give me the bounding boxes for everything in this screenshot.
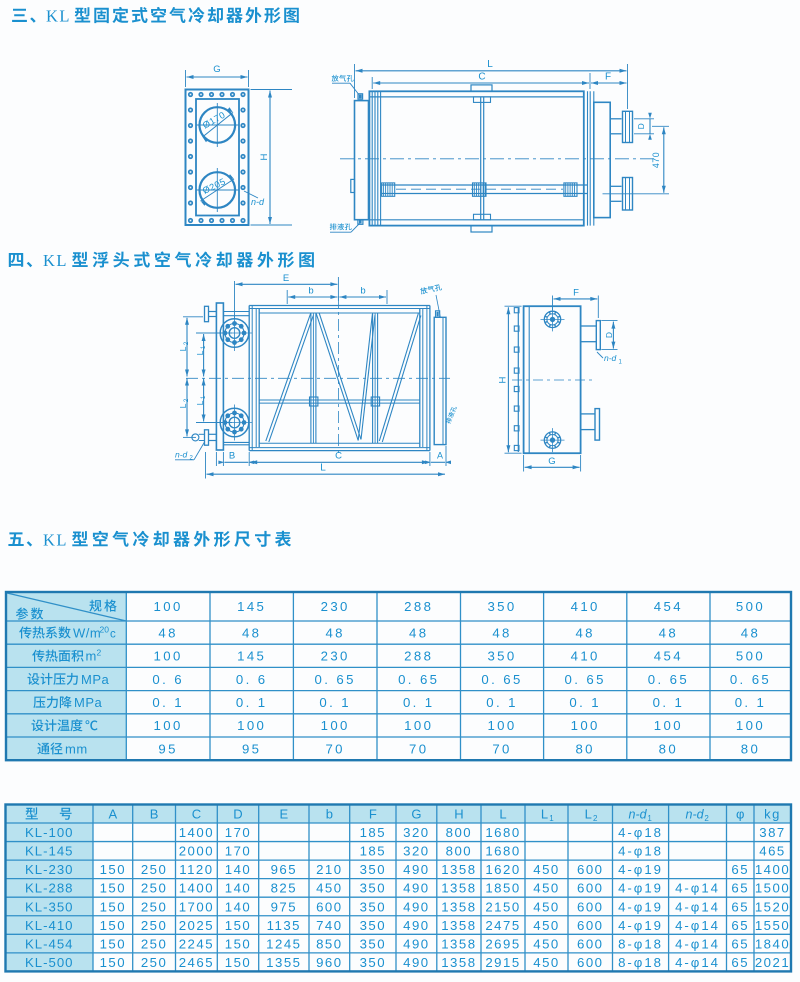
svg-text:1520: 1520 [755, 899, 790, 914]
svg-text:1500: 1500 [755, 881, 790, 896]
svg-text:48: 48 [575, 625, 594, 640]
svg-text:KL-410: KL-410 [25, 918, 74, 933]
svg-text:1358: 1358 [441, 955, 476, 970]
svg-text:0. 1: 0. 1 [152, 695, 184, 710]
svg-text:A: A [109, 807, 118, 822]
svg-text:H: H [259, 153, 270, 160]
svg-text:100: 100 [154, 649, 183, 664]
svg-text:8-φ18: 8-φ18 [618, 936, 663, 951]
svg-text:450: 450 [533, 918, 560, 933]
svg-text:350: 350 [360, 918, 387, 933]
svg-text:0. 1: 0. 1 [403, 695, 435, 710]
svg-text:250: 250 [141, 862, 168, 877]
svg-text:230: 230 [321, 599, 350, 614]
svg-text:48: 48 [741, 625, 760, 640]
svg-text:150: 150 [225, 936, 252, 951]
svg-text:n-d: n-d [629, 808, 648, 822]
svg-text:C: C [478, 71, 485, 82]
svg-text:1355: 1355 [266, 955, 301, 970]
svg-text:C: C [192, 807, 201, 822]
svg-text:1: 1 [549, 814, 554, 823]
svg-text:1840: 1840 [755, 936, 790, 951]
svg-text:48: 48 [325, 625, 344, 640]
svg-text:410: 410 [571, 599, 600, 614]
svg-text:1700: 1700 [179, 899, 214, 914]
svg-text:E: E [280, 807, 289, 822]
svg-text:1: 1 [647, 814, 652, 823]
svg-text:490: 490 [403, 862, 430, 877]
svg-text:KL: KL [43, 530, 68, 549]
svg-text:mm: mm [65, 741, 88, 756]
svg-text:b: b [360, 286, 365, 297]
svg-text:100: 100 [154, 718, 183, 733]
svg-text:F: F [605, 71, 611, 82]
svg-text:454: 454 [654, 599, 683, 614]
svg-text:150: 150 [100, 881, 127, 896]
svg-text:65: 65 [731, 899, 749, 914]
svg-text:W/m: W/m [73, 625, 101, 640]
svg-text:140: 140 [225, 881, 252, 896]
svg-text:G: G [548, 456, 555, 467]
svg-text:70: 70 [492, 741, 511, 756]
svg-text:KL-145: KL-145 [25, 844, 74, 859]
svg-text:350: 350 [360, 899, 387, 914]
svg-text:2: 2 [704, 814, 709, 823]
svg-text:80: 80 [659, 741, 678, 756]
svg-text:465: 465 [759, 844, 786, 859]
svg-text:F: F [369, 807, 377, 822]
svg-text:KL: KL [46, 7, 71, 26]
svg-text:150: 150 [100, 918, 127, 933]
svg-text:1680: 1680 [485, 844, 520, 859]
svg-text:185: 185 [360, 844, 387, 859]
svg-text:600: 600 [577, 881, 604, 896]
svg-text:1680: 1680 [485, 825, 520, 840]
svg-text:600: 600 [577, 899, 604, 914]
svg-text:170: 170 [225, 844, 252, 859]
svg-text:1850: 1850 [485, 881, 520, 896]
svg-text:L: L [195, 350, 205, 355]
svg-text:145: 145 [237, 599, 266, 614]
svg-text:965: 965 [271, 862, 298, 877]
svg-text:D: D [636, 123, 646, 129]
svg-text:0. 6: 0. 6 [236, 672, 268, 687]
svg-text:2000: 2000 [179, 844, 214, 859]
svg-text:4-φ14: 4-φ14 [675, 918, 720, 933]
svg-text:145: 145 [237, 649, 266, 664]
svg-text:L: L [541, 807, 548, 822]
svg-text:0. 65: 0. 65 [481, 672, 522, 687]
svg-text:350: 350 [360, 862, 387, 877]
svg-text:800: 800 [446, 844, 473, 859]
svg-text:490: 490 [403, 918, 430, 933]
svg-text:490: 490 [403, 936, 430, 951]
svg-text:H: H [498, 376, 509, 383]
svg-text:48: 48 [659, 625, 678, 640]
svg-text:100: 100 [404, 718, 433, 733]
svg-text:KL-454: KL-454 [25, 936, 74, 951]
svg-text:150: 150 [225, 918, 252, 933]
svg-text:288: 288 [404, 649, 433, 664]
svg-text:470: 470 [651, 152, 661, 168]
svg-text:95: 95 [242, 741, 261, 756]
svg-text:210: 210 [316, 862, 343, 877]
svg-text:H: H [454, 807, 463, 822]
svg-text:2915: 2915 [485, 955, 520, 970]
svg-text:350: 350 [487, 599, 516, 614]
svg-text:490: 490 [403, 899, 430, 914]
svg-text:490: 490 [403, 955, 430, 970]
svg-text:1400: 1400 [755, 862, 790, 877]
svg-text:0. 65: 0. 65 [730, 672, 771, 687]
svg-text:48: 48 [242, 625, 261, 640]
svg-text:410: 410 [571, 649, 600, 664]
svg-text:KL-350: KL-350 [25, 899, 74, 914]
svg-text:0. 1: 0. 1 [569, 695, 601, 710]
svg-text:65: 65 [731, 955, 749, 970]
svg-text:1358: 1358 [441, 899, 476, 914]
svg-text:825: 825 [271, 881, 298, 896]
svg-text:0. 65: 0. 65 [648, 672, 689, 687]
svg-text:600: 600 [577, 936, 604, 951]
svg-text:100: 100 [487, 718, 516, 733]
svg-text:4-φ19: 4-φ19 [618, 862, 663, 877]
svg-text:500: 500 [736, 599, 765, 614]
svg-text:E: E [283, 273, 289, 284]
svg-text:387: 387 [759, 825, 786, 840]
svg-text:2: 2 [593, 814, 598, 823]
svg-text:65: 65 [731, 936, 749, 951]
svg-text:4-φ14: 4-φ14 [675, 899, 720, 914]
svg-text:600: 600 [577, 862, 604, 877]
svg-text:8-φ18: 8-φ18 [618, 955, 663, 970]
svg-text:4-φ18: 4-φ18 [618, 844, 663, 859]
svg-text:KL-100: KL-100 [25, 825, 74, 840]
svg-text:KL: KL [43, 251, 68, 270]
svg-text:100: 100 [154, 599, 183, 614]
svg-text:n-d: n-d [686, 808, 705, 822]
svg-text:b: b [308, 286, 313, 297]
svg-text:350: 350 [360, 881, 387, 896]
svg-text:740: 740 [316, 918, 343, 933]
svg-text:450: 450 [533, 899, 560, 914]
svg-text:140: 140 [225, 899, 252, 914]
svg-text:350: 350 [360, 936, 387, 951]
svg-text:G: G [213, 64, 220, 75]
svg-text:600: 600 [577, 918, 604, 933]
svg-text:n-d: n-d [175, 450, 188, 460]
svg-text:185: 185 [360, 825, 387, 840]
svg-text:100: 100 [321, 718, 350, 733]
svg-text:B: B [150, 807, 159, 822]
svg-text:1358: 1358 [441, 881, 476, 896]
svg-text:L: L [178, 403, 188, 408]
svg-text:20: 20 [100, 624, 110, 634]
svg-text:F: F [573, 287, 579, 298]
svg-text:1358: 1358 [441, 918, 476, 933]
svg-text:450: 450 [533, 936, 560, 951]
svg-text:320: 320 [403, 844, 430, 859]
svg-text:150: 150 [100, 936, 127, 951]
svg-text:4-φ14: 4-φ14 [675, 936, 720, 951]
svg-text:4-φ19: 4-φ19 [618, 881, 663, 896]
svg-text:φ: φ [736, 807, 744, 822]
svg-text:100: 100 [654, 718, 683, 733]
svg-text:MPa: MPa [74, 695, 103, 710]
svg-text:kg: kg [764, 807, 781, 822]
svg-text:975: 975 [271, 899, 298, 914]
svg-text:800: 800 [446, 825, 473, 840]
svg-text:1400: 1400 [179, 825, 214, 840]
svg-text:250: 250 [141, 899, 168, 914]
svg-text:b: b [326, 807, 333, 822]
svg-text:80: 80 [741, 741, 760, 756]
svg-text:1135: 1135 [267, 918, 301, 933]
svg-text:1358: 1358 [441, 862, 476, 877]
svg-text:65: 65 [731, 881, 749, 896]
svg-text:L: L [487, 59, 493, 70]
svg-text:0. 6: 0. 6 [152, 672, 184, 687]
svg-text:0. 65: 0. 65 [565, 672, 606, 687]
svg-text:850: 850 [316, 936, 343, 951]
svg-text:65: 65 [731, 862, 749, 877]
svg-text:B: B [229, 451, 235, 462]
svg-text:100: 100 [571, 718, 600, 733]
svg-text:D: D [604, 332, 614, 338]
svg-text:1245: 1245 [266, 936, 301, 951]
svg-text:80: 80 [575, 741, 594, 756]
svg-text:230: 230 [321, 649, 350, 664]
svg-text:KL-230: KL-230 [25, 862, 74, 877]
svg-text:D: D [233, 807, 242, 822]
svg-text:1358: 1358 [441, 936, 476, 951]
svg-text:MPa: MPa [81, 672, 110, 687]
svg-text:150: 150 [225, 955, 252, 970]
svg-text:2021: 2021 [755, 955, 790, 970]
svg-text:C: C [335, 451, 342, 462]
svg-text:320: 320 [403, 825, 430, 840]
svg-text:2025: 2025 [179, 918, 214, 933]
svg-text:L: L [585, 807, 592, 822]
svg-text:L: L [195, 400, 205, 405]
svg-text:100: 100 [237, 718, 266, 733]
svg-text:70: 70 [325, 741, 344, 756]
svg-text:4-φ19: 4-φ19 [618, 918, 663, 933]
svg-text:450: 450 [533, 881, 560, 896]
svg-text:95: 95 [158, 741, 177, 756]
svg-text:65: 65 [731, 918, 749, 933]
svg-text:0. 65: 0. 65 [398, 672, 439, 687]
svg-text:48: 48 [492, 625, 511, 640]
svg-text:2695: 2695 [485, 936, 520, 951]
svg-text:0. 1: 0. 1 [486, 695, 518, 710]
svg-text:70: 70 [409, 741, 428, 756]
svg-text:2150: 2150 [485, 899, 520, 914]
svg-text:450: 450 [316, 881, 343, 896]
svg-text:c: c [110, 628, 116, 640]
svg-text:150: 150 [100, 955, 127, 970]
svg-text:0. 65: 0. 65 [315, 672, 356, 687]
svg-text:1550: 1550 [755, 918, 790, 933]
svg-text:1400: 1400 [179, 881, 214, 896]
svg-text:0. 1: 0. 1 [319, 695, 351, 710]
svg-text:600: 600 [577, 955, 604, 970]
svg-text:0. 1: 0. 1 [735, 695, 767, 710]
svg-text:48: 48 [158, 625, 177, 640]
svg-text:2: 2 [97, 648, 102, 658]
svg-text:288: 288 [404, 599, 433, 614]
svg-text:350: 350 [360, 955, 387, 970]
svg-text:2465: 2465 [179, 955, 214, 970]
svg-text:450: 450 [533, 862, 560, 877]
svg-text:1620: 1620 [485, 862, 520, 877]
svg-text:150: 150 [100, 899, 127, 914]
svg-text:960: 960 [316, 955, 343, 970]
svg-text:L: L [320, 463, 326, 474]
svg-text:150: 150 [100, 862, 127, 877]
svg-text:48: 48 [409, 625, 428, 640]
svg-text:250: 250 [141, 936, 168, 951]
svg-text:4-φ18: 4-φ18 [618, 825, 663, 840]
svg-text:2245: 2245 [179, 936, 214, 951]
svg-text:G: G [411, 807, 421, 822]
svg-text:4-φ19: 4-φ19 [618, 899, 663, 914]
svg-text:100: 100 [736, 718, 765, 733]
svg-text:0. 1: 0. 1 [236, 695, 268, 710]
svg-text:0. 1: 0. 1 [653, 695, 685, 710]
svg-text:2475: 2475 [485, 918, 520, 933]
svg-text:n-d: n-d [604, 353, 617, 363]
svg-text:454: 454 [654, 649, 683, 664]
svg-text:n-d: n-d [251, 197, 265, 207]
svg-text:KL-288: KL-288 [25, 881, 74, 896]
svg-text:490: 490 [403, 881, 430, 896]
svg-text:A: A [437, 451, 443, 461]
svg-text:250: 250 [141, 955, 168, 970]
svg-text:450: 450 [533, 955, 560, 970]
svg-text:1120: 1120 [179, 862, 213, 877]
svg-text:4-φ14: 4-φ14 [675, 881, 720, 896]
svg-text:L: L [178, 346, 188, 351]
svg-text:KL-500: KL-500 [25, 955, 74, 970]
svg-text:600: 600 [316, 899, 343, 914]
svg-text:350: 350 [487, 649, 516, 664]
svg-text:m: m [86, 649, 97, 664]
svg-text:L: L [499, 807, 506, 822]
svg-text:140: 140 [225, 862, 252, 877]
svg-text:250: 250 [141, 881, 168, 896]
svg-text:250: 250 [141, 918, 168, 933]
svg-text:170: 170 [225, 825, 252, 840]
svg-text:4-φ14: 4-φ14 [675, 955, 720, 970]
svg-text:500: 500 [736, 649, 765, 664]
